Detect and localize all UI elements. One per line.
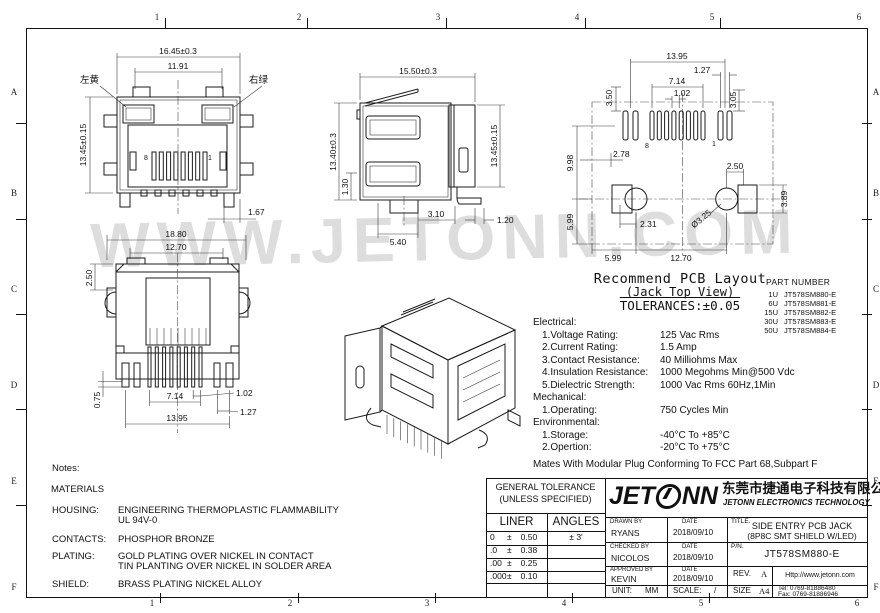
pn-qty: 6U — [756, 300, 778, 308]
part-number-row: 1UJT578SM880-E — [756, 291, 836, 299]
spec-row: 2.Current Rating:1.5 Amp — [533, 342, 868, 355]
pcb-layout-subheading: (Jack Top View) — [590, 286, 770, 299]
ruler-col: 3 — [432, 13, 444, 22]
pn-value: JT578SM882-E — [784, 308, 836, 317]
tol-val: 0.25 — [521, 558, 538, 568]
logo-lightning-o-icon — [654, 484, 683, 509]
side-view-drawing: 15.50±0.3 13.40±0.3 1.30 13.45±0.15 3.10… — [318, 48, 533, 253]
rev-label: REV. — [733, 570, 751, 578]
date-value: 2018/09/10 — [673, 529, 713, 537]
spec-value: -20°C To +75°C — [660, 442, 730, 455]
svg-text:7.14: 7.14 — [669, 76, 686, 86]
pn-qty: 1U — [756, 291, 778, 299]
svg-text:左黄: 左黄 — [80, 74, 99, 86]
tol-val: 0.50 — [521, 532, 538, 542]
pn-value: JT578SM880-E — [738, 550, 866, 561]
spec-row: 5.Dielectric Strength:1000 Vac Rms 60Hz,… — [533, 380, 868, 393]
logo-text-nn: NN — [682, 483, 718, 509]
material-value: GOLD PLATING OVER NICKEL IN CONTACTTIN P… — [118, 552, 331, 572]
ruler-row: B — [8, 189, 20, 198]
svg-text:1: 1 — [712, 141, 716, 148]
website: Http://www.jetonn.com — [772, 572, 868, 579]
spec-section-title: Electrical: — [533, 317, 868, 330]
tolerance-row: .000±0.10 — [490, 572, 537, 581]
spec-value: 1000 Megohms Min@500 Vdc — [660, 367, 795, 380]
ruler-col: 1 — [151, 13, 163, 22]
spec-key: 3.Contact Resistance: — [533, 355, 660, 368]
ruler-row: C — [8, 285, 20, 294]
material-value: BRASS PLATING NICKEL ALLOY — [118, 580, 262, 590]
drawing-title-line2: (8P8C SMT SHIELD W/LED) — [738, 532, 866, 541]
unit-label: UNIT: — [612, 587, 632, 595]
svg-text:5.99: 5.99 — [565, 213, 575, 230]
ruler-row: D — [8, 381, 20, 390]
materials-title: MATERIALS — [51, 485, 104, 495]
date-label: DATE — [682, 567, 698, 573]
tolerance-row: .0±0.38 — [490, 546, 537, 555]
spec-key: 1.Storage: — [533, 430, 660, 443]
svg-text:13.40±0.3: 13.40±0.3 — [328, 133, 338, 171]
svg-text:右绿: 右绿 — [249, 74, 269, 86]
material-label: CONTACTS: — [52, 535, 106, 545]
drawn-by-name: RYANS — [611, 529, 640, 538]
svg-text:9.98: 9.98 — [565, 154, 575, 171]
svg-text:3.05: 3.05 — [728, 91, 738, 108]
svg-text:15.50±0.3: 15.50±0.3 — [399, 66, 437, 76]
part-number-title: PART NUMBER — [766, 278, 830, 287]
tol-pm: ± — [507, 558, 512, 568]
part-number-row: 6UJT578SM881-E — [756, 300, 836, 308]
svg-text:2.78: 2.78 — [613, 149, 630, 159]
spec-key: 5.Dielectric Strength: — [533, 380, 660, 393]
tolerance-angle-value: ± 3' — [547, 533, 605, 542]
tol-prec: .000 — [490, 572, 507, 581]
front-view-drawing: 16.45±0.3 11.91 13.45±0.15 1.67 左黄 右绿 — [38, 44, 288, 244]
spec-footnote: Mates With Modular Plug Conforming To FC… — [533, 459, 868, 472]
date-value: 2018/09/10 — [673, 554, 713, 562]
svg-text:1.30: 1.30 — [340, 178, 350, 195]
svg-text:3.50: 3.50 — [604, 89, 614, 106]
date-label: DATE — [682, 544, 698, 550]
svg-text:1.67: 1.67 — [248, 207, 265, 217]
spec-row: 1.Voltage Rating:125 Vac Rms — [533, 330, 868, 343]
material-value: ENGINEERING THERMOPLASTIC FLAMMABILITYUL… — [118, 506, 339, 526]
checked-by-label: CHECKED BY — [610, 544, 649, 550]
svg-text:13.45±0.15: 13.45±0.15 — [489, 124, 499, 167]
unit-value: MM — [645, 587, 658, 595]
tol-pm: ± — [507, 545, 512, 555]
ruler-col: 1 — [146, 599, 158, 608]
tol-val: 0.10 — [521, 571, 538, 581]
spec-row: 3.Contact Resistance:40 Milliohms Max — [533, 355, 868, 368]
company-name-cn: 东莞市捷通电子科技有限公司 — [722, 482, 880, 496]
date-value: 2018/09/10 — [673, 575, 713, 583]
rev-value: A — [761, 570, 767, 579]
svg-text:8: 8 — [144, 155, 148, 162]
ruler-col: 6 — [853, 13, 865, 22]
approved-by-name: KEVIN — [611, 575, 637, 584]
tolerance-header: GENERAL TOLERANCE — [486, 483, 605, 492]
logo-text-jet: JET — [609, 483, 655, 509]
pn-value: JT578SM880-E — [784, 290, 836, 299]
svg-text:18.80: 18.80 — [165, 229, 187, 239]
checked-by-name: NICOLOS — [611, 554, 649, 563]
material-label: HOUSING: — [52, 506, 99, 516]
ruler-col: 3 — [421, 599, 433, 608]
spec-value: -40°C To +85°C — [660, 430, 730, 443]
svg-text:8: 8 — [645, 143, 649, 150]
spec-row: 1.Storage:-40°C To +85°C — [533, 430, 868, 443]
svg-text:1: 1 — [208, 155, 212, 162]
svg-text:1.20: 1.20 — [497, 215, 514, 225]
material-label: SHIELD: — [52, 580, 89, 590]
size-label: SIZE — [733, 587, 751, 595]
ruler-row: F — [8, 583, 20, 592]
ruler-row: C — [870, 285, 880, 294]
spec-section-title: Mechanical: — [533, 392, 868, 405]
svg-text:0.75: 0.75 — [92, 391, 102, 408]
ruler-row: E — [8, 477, 20, 486]
spec-key: 4.Insulation Resistance: — [533, 367, 660, 380]
drawing-sheet: WWW.JETONN.COM 1 2 3 4 5 6 1 2 3 4 5 6 A… — [0, 0, 880, 613]
svg-text:1.02: 1.02 — [236, 388, 253, 398]
ruler-col: 2 — [284, 599, 296, 608]
svg-text:Ø3.25: Ø3.25 — [689, 207, 713, 230]
svg-text:3.89: 3.89 — [779, 190, 789, 207]
scale-value: / — [714, 587, 716, 595]
tolerance-header2: (UNLESS SPECIFIED) — [486, 495, 605, 504]
svg-text:5.99: 5.99 — [605, 253, 622, 263]
tolerance-row: .00±0.25 — [490, 559, 537, 568]
spec-key: 1.Voltage Rating: — [533, 330, 660, 343]
tol-val: 0.38 — [521, 545, 538, 555]
size-value: A4 — [759, 587, 769, 596]
scale-label: SCALE: — [673, 587, 701, 595]
tol-prec: .0 — [490, 546, 507, 555]
svg-text:2.31: 2.31 — [640, 219, 657, 229]
ruler-col: 6 — [851, 599, 863, 608]
pn-value: JT578SM881-E — [784, 299, 836, 308]
notes-title: Notes: — [52, 464, 79, 474]
spec-key: 1.Operating: — [533, 405, 660, 418]
spec-block: Electrical: 1.Voltage Rating:125 Vac Rms… — [533, 317, 868, 471]
spec-key: 2.Current Rating: — [533, 342, 660, 355]
svg-text:3.10: 3.10 — [428, 209, 445, 219]
material-line: UL 94V-0 — [118, 516, 339, 526]
tol-pm: ± — [507, 571, 512, 581]
svg-text:5.40: 5.40 — [390, 237, 407, 247]
ruler-row: F — [870, 583, 880, 592]
svg-text:2.50: 2.50 — [84, 269, 94, 286]
svg-text:13.95: 13.95 — [666, 51, 688, 61]
spec-row: 2.Opertion:-20°C To +75°C — [533, 442, 868, 455]
pn-qty: 15U — [756, 309, 778, 317]
svg-text:1.27: 1.27 — [694, 65, 711, 75]
spec-section-title: Environmental: — [533, 417, 868, 430]
svg-text:7.14: 7.14 — [167, 391, 184, 401]
material-label: PLATING: — [52, 552, 95, 562]
svg-text:1.27: 1.27 — [240, 407, 257, 417]
tolerance-row: 0±0.50 — [490, 533, 537, 542]
ruler-col: 4 — [558, 599, 570, 608]
svg-text:12.70: 12.70 — [670, 253, 692, 263]
jetonn-logo: JETNN — [609, 483, 718, 509]
spec-value: 40 Milliohms Max — [660, 355, 737, 368]
tol-prec: 0 — [490, 533, 507, 542]
spec-row: 4.Insulation Resistance:1000 Megohms Min… — [533, 367, 868, 380]
spec-value: 1000 Vac Rms 60Hz,1Min — [660, 380, 775, 393]
tol-prec: .00 — [490, 559, 507, 568]
svg-text:16.45±0.3: 16.45±0.3 — [159, 46, 197, 56]
fax: Fax: 0769-81886946 — [778, 592, 838, 599]
svg-text:2.50: 2.50 — [727, 161, 744, 171]
rear-view-drawing: 18.80 12.70 2.50 0.75 7.14 1.02 1.27 13.… — [38, 228, 278, 440]
ruler-col: 2 — [293, 13, 305, 22]
company-name-en: JETONN ELECTRONICS TECHNOLOGY — [723, 499, 870, 507]
ruler-col: 5 — [695, 599, 707, 608]
svg-text:12.70: 12.70 — [165, 242, 187, 252]
svg-text:13.45±0.15: 13.45±0.15 — [78, 123, 88, 166]
material-line: TIN PLANTING OVER NICKEL IN SOLDER AREA — [118, 562, 331, 572]
ruler-col: 5 — [706, 13, 718, 22]
spec-value: 125 Vac Rms — [660, 330, 719, 343]
pcb-layout-drawing: 13.95 1.27 7.14 1.02 3.50 3.05 9.98 5.99… — [555, 45, 880, 275]
pcb-layout-tolerance: TOLERANCES:±0.05 — [590, 299, 770, 312]
svg-text:1.02: 1.02 — [674, 88, 691, 98]
date-label: DATE — [682, 519, 698, 525]
svg-text:11.91: 11.91 — [168, 61, 189, 71]
ruler-col: 4 — [571, 13, 583, 22]
spec-value: 1.5 Amp — [660, 342, 697, 355]
spec-key: 2.Opertion: — [533, 442, 660, 455]
isometric-view-drawing — [283, 282, 533, 474]
ruler-row: A — [8, 88, 20, 97]
tolerance-col-liner: LINER — [486, 516, 547, 528]
svg-text:13.95: 13.95 — [166, 413, 188, 423]
part-number-row: 15UJT578SM882-E — [756, 309, 836, 317]
spec-row: 1.Operating:750 Cycles Min — [533, 405, 868, 418]
drawn-by-label: DRAWN BY — [610, 519, 642, 525]
tol-pm: ± — [507, 532, 512, 542]
approved-by-label: APPROVED BY — [610, 567, 653, 573]
material-value: PHOSPHOR BRONZE — [118, 535, 215, 545]
tolerance-col-angles: ANGLES — [547, 516, 605, 528]
ruler-row: D — [870, 381, 880, 390]
spec-value: 750 Cycles Min — [660, 405, 728, 418]
